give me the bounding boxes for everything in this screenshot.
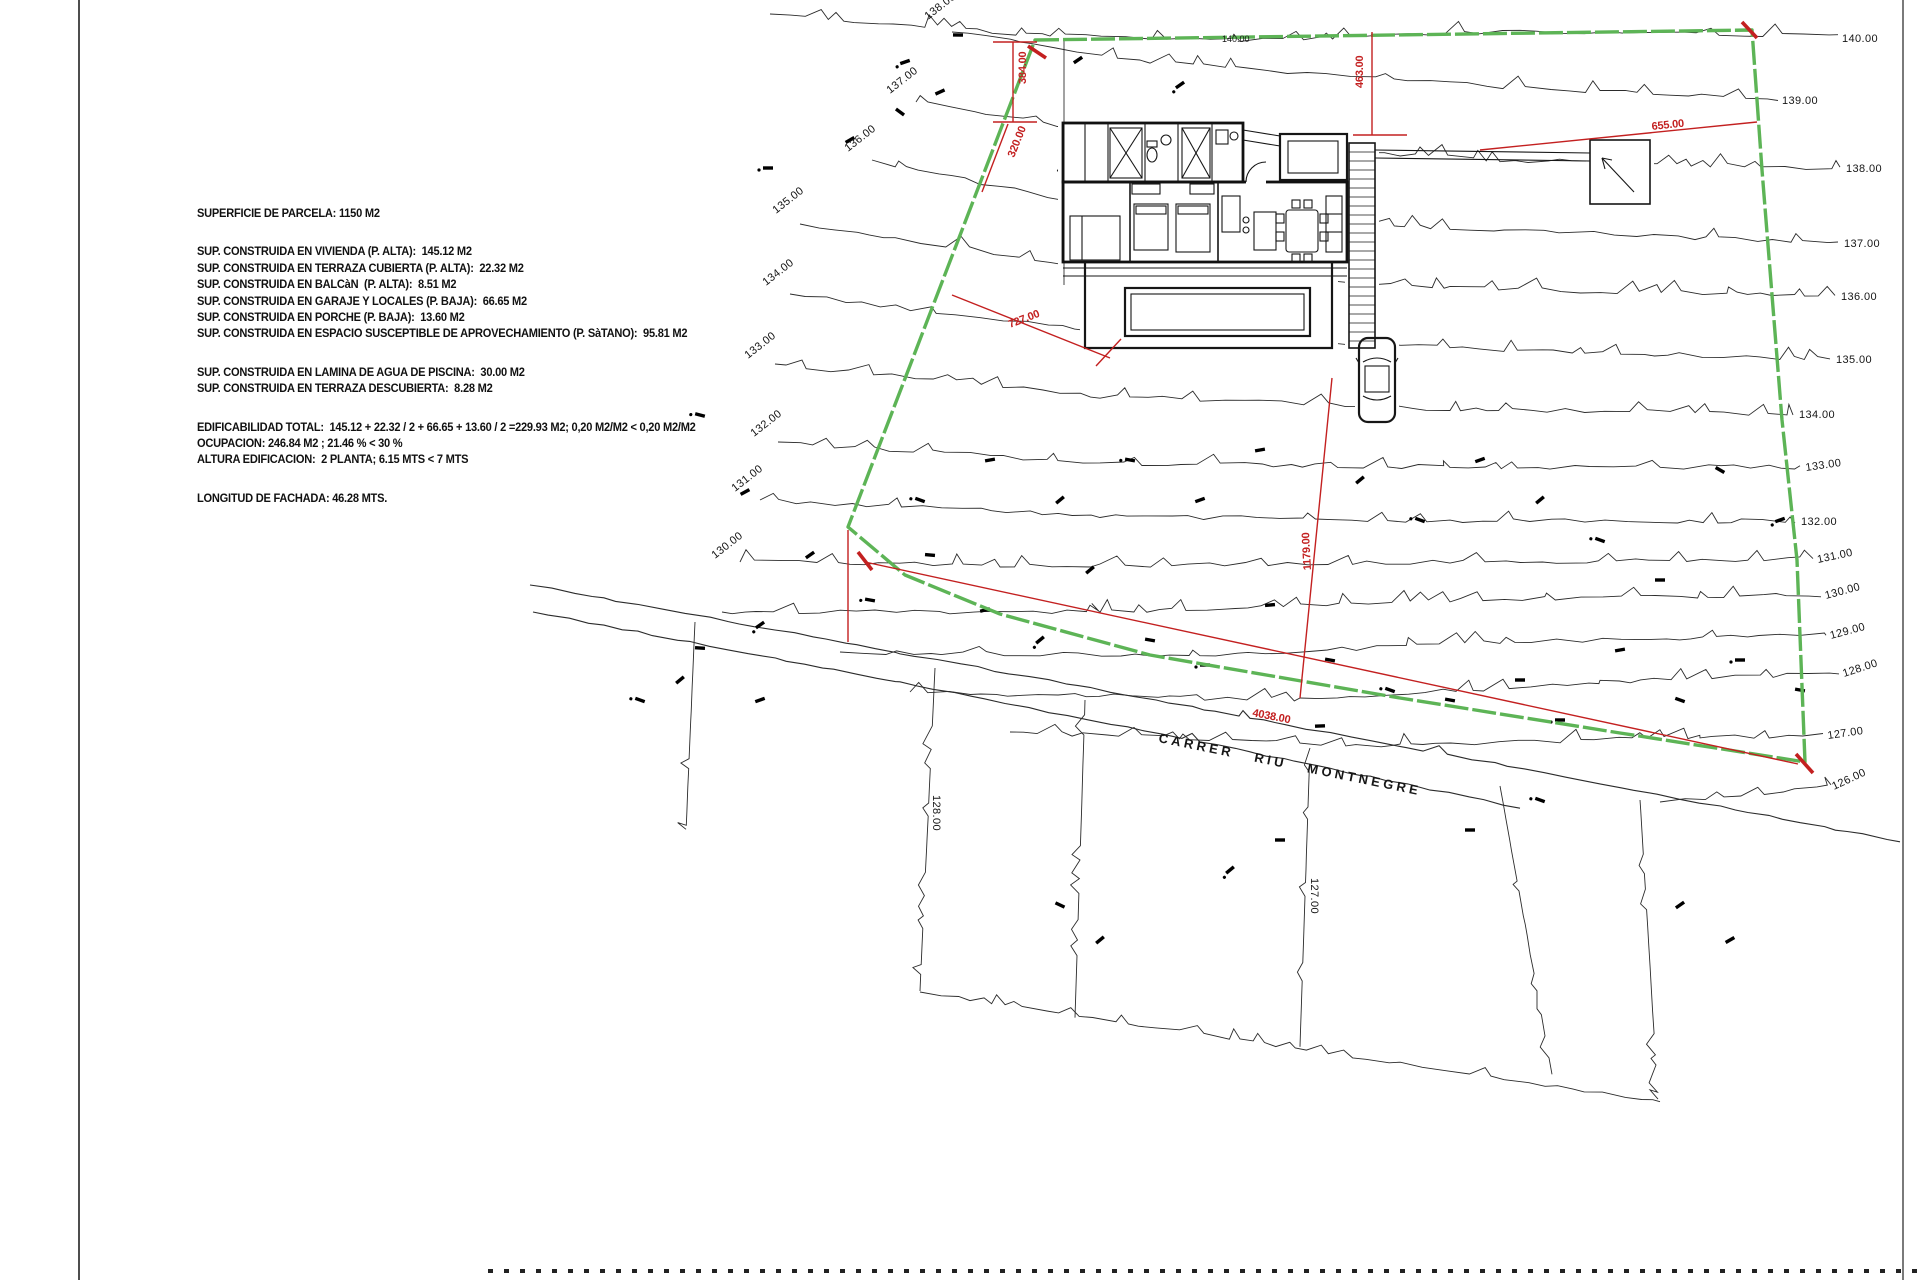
vegetation-mark	[629, 696, 645, 705]
vegetation-mark	[909, 496, 925, 505]
street-and-parcel-lines	[530, 585, 1900, 1102]
vegetation-mark	[1536, 497, 1544, 503]
vegetation-mark	[755, 698, 764, 701]
building-masks	[1058, 118, 1654, 426]
label-13100: 131.00	[1816, 547, 1854, 566]
vegetation-mark	[935, 90, 944, 94]
info-spacer	[197, 480, 696, 491]
label-13800: 138.00	[1846, 163, 1882, 175]
label-14000: 140.00	[1842, 33, 1878, 45]
info-line: SUP. CONSTRUIDA EN BALCàN (P. ALTA): 8.5…	[197, 277, 696, 293]
vegetation-mark	[1119, 458, 1135, 464]
label-14000: 140.00	[1222, 34, 1250, 44]
label-13600: 136.00	[1841, 291, 1877, 303]
label-117900: 1179.00	[1300, 532, 1314, 570]
vegetation-mark	[1676, 902, 1684, 908]
label-38400: 384.00	[1017, 51, 1029, 84]
vegetation-mark	[1409, 516, 1425, 525]
vegetation-mark	[1096, 937, 1104, 943]
label-13600: 136.00	[842, 123, 878, 155]
vegetation-mark	[985, 459, 995, 461]
label-13400: 134.00	[1799, 409, 1835, 421]
info-line: SUP. CONSTRUIDA EN TERRAZA DESCUBIERTA: …	[197, 381, 696, 397]
label-12700: 127.00	[1308, 878, 1320, 914]
vegetation-mark	[1716, 468, 1725, 473]
vegetation-mark	[896, 109, 904, 115]
info-line: SUPERFICIE DE PARCELA: 1150 M2	[197, 206, 696, 222]
vegetation-mark	[676, 677, 684, 683]
vegetation-mark	[1445, 699, 1455, 701]
label-12800: 128.00	[930, 795, 942, 831]
info-spacer	[197, 222, 696, 233]
info-line: EDIFICABILIDAD TOTAL: 145.12 + 22.32 / 2…	[197, 420, 696, 436]
label-32000: 320.00	[1006, 124, 1029, 159]
vegetation-mark	[1145, 639, 1155, 641]
info-line: OCUPACION: 246.84 M2 ; 21.46 % < 30 %	[197, 436, 696, 452]
info-line: SUP. CONSTRUIDA EN GARAJE Y LOCALES (P. …	[197, 294, 696, 310]
label-12700: 127.00	[1827, 725, 1864, 742]
vegetation-mark	[1726, 938, 1735, 943]
vegetation-mark	[1032, 637, 1046, 650]
info-line: SUP. CONSTRUIDA EN LAMINA DE AGUA DE PIS…	[197, 365, 696, 381]
label-13300: 133.00	[1805, 457, 1842, 474]
vegetation-mark	[1074, 57, 1082, 63]
label-65500: 655.00	[1651, 118, 1685, 133]
vegetation-mark	[925, 555, 935, 556]
info-spacer	[197, 469, 696, 480]
label-13700: 137.00	[884, 65, 920, 97]
info-spacer	[197, 354, 696, 365]
label-13900: 139.00	[1782, 95, 1818, 107]
vegetation-mark	[1675, 698, 1684, 701]
vegetation-mark	[1255, 449, 1265, 451]
label-13300: 133.00	[742, 330, 778, 362]
label-13800: 138.00	[922, 0, 958, 22]
vegetation-mark	[1265, 605, 1275, 606]
vegetation-mark	[1475, 458, 1484, 461]
vegetation-mark	[1195, 498, 1204, 501]
info-spacer	[197, 233, 696, 244]
vegetation-mark	[1589, 536, 1605, 545]
vegetation-mark	[1615, 649, 1625, 651]
info-spacer	[197, 398, 696, 409]
label-13400: 134.00	[760, 257, 796, 289]
info-line: SUP. CONSTRUIDA EN ESPACIO SUSCEPTIBLE D…	[197, 326, 696, 342]
info-line: ALTURA EDIFICACION: 2 PLANTA; 6.15 MTS <…	[197, 452, 696, 468]
label-13700: 137.00	[1844, 238, 1880, 250]
info-spacer	[197, 409, 696, 420]
label-12900: 129.00	[1829, 621, 1867, 642]
site-plan-sheet: 140.00139.00138.00137.00136.00135.00134.…	[0, 0, 1920, 1280]
info-spacer	[197, 343, 696, 354]
info-line: SUP. CONSTRUIDA EN TERRAZA CUBIERTA (P. …	[197, 261, 696, 277]
vegetation-mark	[757, 168, 773, 172]
label-13500: 135.00	[1836, 354, 1872, 366]
label-13200: 132.00	[748, 408, 784, 440]
vegetation-mark	[1055, 903, 1064, 907]
vegetation-mark	[1770, 518, 1786, 527]
info-line: LONGITUD DE FACHADA: 46.28 MTS.	[197, 491, 696, 507]
label-72700: 727.00	[1007, 308, 1042, 331]
label-CARRERRIUMONTNEGRE: CARRER RIU MONTNEGRE	[1157, 730, 1422, 798]
vegetation-mark	[1086, 567, 1094, 573]
label-13500: 135.00	[770, 185, 806, 217]
vegetation-mark	[1222, 867, 1236, 880]
site-plan-drawing: 140.00139.00138.00137.00136.00135.00134.…	[0, 0, 1920, 1280]
label-46300: 463.00	[1354, 55, 1366, 88]
info-line: SUP. CONSTRUIDA EN VIVIENDA (P. ALTA): 1…	[197, 244, 696, 260]
vegetation-mark	[1056, 497, 1064, 503]
label-13000: 130.00	[709, 530, 745, 562]
vegetation-mark	[1171, 82, 1186, 94]
label-12800: 128.00	[1841, 657, 1879, 680]
info-line: SUP. CONSTRUIDA EN PORCHE (P. BAJA): 13.…	[197, 310, 696, 326]
vegetation-mark	[859, 598, 875, 604]
vegetation-mark	[1729, 660, 1745, 664]
label-12600: 126.00	[1830, 767, 1868, 793]
label-13200: 132.00	[1801, 516, 1837, 528]
vegetation-mark	[695, 648, 705, 649]
label-403800: 4038.00	[1251, 707, 1291, 726]
vegetation-mark	[806, 552, 814, 558]
info-panel: SUPERFICIE DE PARCELA: 1150 M2SUP. CONST…	[197, 206, 696, 507]
label-13000: 130.00	[1824, 581, 1862, 602]
vegetation-mark	[1529, 796, 1545, 805]
vegetation-mark	[1325, 659, 1335, 661]
vegetation-mark	[1356, 477, 1364, 483]
